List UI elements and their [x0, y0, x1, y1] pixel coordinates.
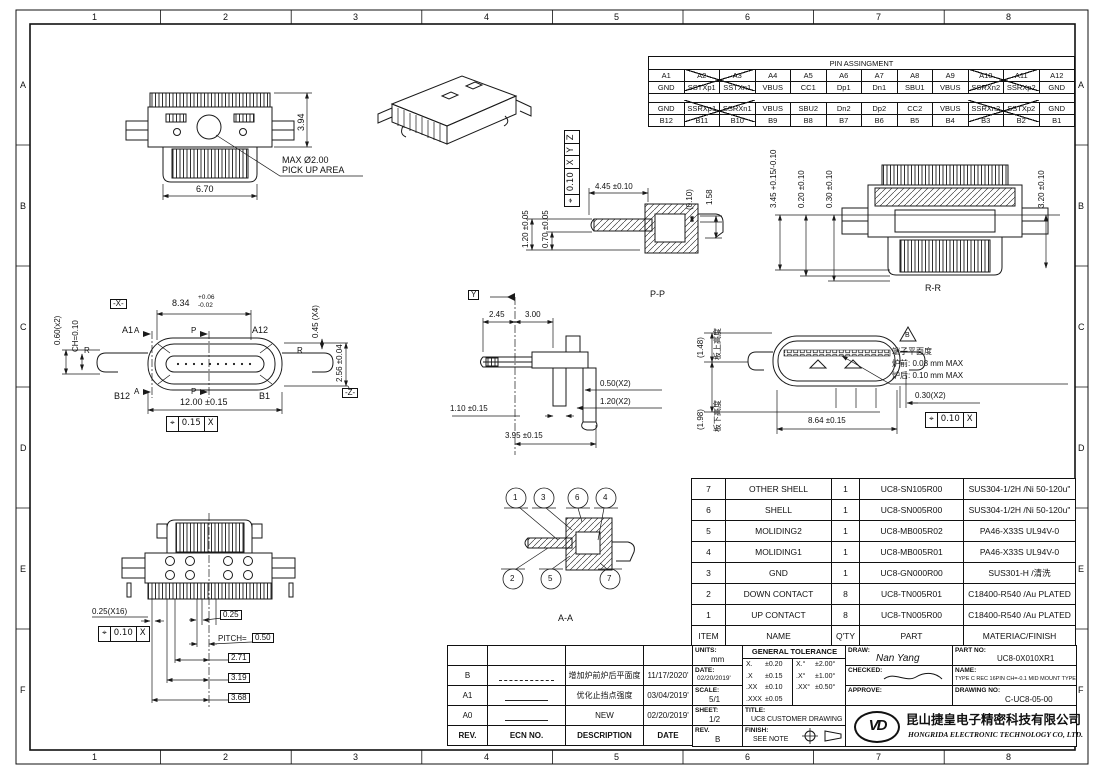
bom-cell: UC8-MB005R02	[860, 521, 964, 542]
rev-ecn-line	[488, 706, 566, 726]
position-symbol: ⌖	[99, 627, 111, 641]
datum-z-flag: -Z-	[342, 388, 358, 398]
fcf-value: 0.10	[565, 168, 579, 194]
bom-cell: 8	[832, 584, 860, 605]
bom-cell: UC8-SN005R00	[860, 500, 964, 521]
view-side-art	[452, 293, 662, 455]
pp-dim-120: 1.20 ±0.05	[522, 210, 530, 248]
sheet-cell: SHEET: 1/2	[692, 705, 744, 727]
rev-cell	[488, 646, 566, 666]
pin-cell: A9	[933, 70, 969, 82]
zone-col-3-top: 3	[353, 12, 358, 22]
pp-dim-010: (0.10)	[686, 189, 694, 210]
bom-table: 7OTHER SHELL1UC8-SN105R00SUS304-1/2H /Ni…	[691, 478, 1076, 647]
zone-col-6-top: 6	[745, 12, 750, 22]
zone-col-5-bottom: 5	[614, 752, 619, 762]
bom-row: 7OTHER SHELL1UC8-SN105R00SUS304-1/2H /Ni…	[692, 479, 1076, 500]
rev-cell: 增加炉前炉后平面度	[566, 666, 644, 686]
bom-cell: UC8-TN005R01	[860, 584, 964, 605]
projection-angle-icon	[801, 727, 845, 745]
pin-cell: Dn2	[826, 103, 862, 115]
bom-cell: 4	[692, 542, 726, 563]
rear-note-1: 端子平面度	[892, 348, 932, 356]
pin-cell: B5	[897, 115, 933, 127]
balloon-5: 5	[548, 575, 552, 583]
zone-col-4-bottom: 4	[484, 752, 489, 762]
bom-cell: 8	[832, 605, 860, 626]
finish-label: FINISH:	[745, 727, 768, 734]
bom-cell: PA46-X33S UL94V-0	[964, 542, 1076, 563]
fcf-datum: X	[565, 155, 579, 168]
zone-row-e-right: E	[1078, 564, 1084, 574]
pin-cell: A5	[791, 70, 827, 82]
view-rr-art	[775, 165, 1060, 281]
rev-cell: 03/04/2019'	[644, 686, 693, 706]
aa-section-label: A-A	[558, 614, 573, 623]
zone-col-7-top: 7	[876, 12, 881, 22]
scale-cell: SCALE: 5/1	[692, 685, 744, 707]
side-dim-050: 0.50(X2)	[600, 380, 631, 388]
gt-cell: X.	[743, 659, 765, 671]
bom-cell: DOWN CONTACT	[726, 584, 832, 605]
rear-dim-030: 0.30(X2)	[915, 392, 946, 400]
date-value: 02/20/2019'	[697, 676, 731, 683]
bom-cell: SUS304-1/2H /Ni 50-120u"	[964, 479, 1076, 500]
front-position-tolerance: ⌖0.15X	[166, 416, 218, 432]
bom-row: 2DOWN CONTACT8UC8-TN005R01C18400-R540 /A…	[692, 584, 1076, 605]
bottom-dim-271: 2.71	[228, 653, 250, 663]
zone-row-c-right: C	[1078, 322, 1085, 332]
side-dim-110: 1.10 ±0.15	[450, 405, 488, 413]
view-aa-art	[501, 488, 634, 589]
rev-label: REV.	[695, 727, 710, 734]
pin-cell: B7	[826, 115, 862, 127]
rev-cell: B	[448, 666, 488, 686]
rev-cell: NEW	[566, 706, 644, 726]
pin-cell: VBUS	[933, 103, 969, 115]
company-block: VD 昆山捷皇电子精密科技有限公司 HONGRIDA ELECTRONIC TE…	[845, 705, 1077, 747]
view-top-art	[126, 93, 363, 200]
rev-header: DESCRIPTION	[566, 726, 644, 746]
zone-row-e-left: E	[20, 564, 26, 574]
rev-cell: A0	[448, 706, 488, 726]
bom-cell: 5	[692, 521, 726, 542]
side-dim-245: 2.45	[489, 311, 505, 319]
scale-label: SCALE:	[695, 687, 719, 694]
bom-cell: MOLIDING2	[726, 521, 832, 542]
name-cell: NAME: TYPE C REC 16PIN CH=-0.1 MID MOUNT…	[952, 665, 1077, 687]
front-section-p-top: P	[191, 327, 196, 335]
pin-cell: Dp1	[826, 82, 862, 94]
fcf-value: 0.10	[938, 413, 964, 427]
pp-section-label: P-P	[650, 290, 665, 299]
bom-cell: SHELL	[726, 500, 832, 521]
rev-header: REV.	[448, 726, 488, 746]
checked-cell: CHECKED:	[845, 665, 954, 687]
rear-lbl-148: 板上高度	[714, 328, 722, 360]
gt-cell: X.°	[792, 659, 815, 671]
pin-cell: A7	[862, 70, 898, 82]
bottom-pitch-value: 0.50	[252, 633, 274, 643]
front-dim-256: 2.56 ±0.04	[336, 344, 344, 382]
pin-cell: B12	[649, 115, 685, 127]
zone-row-b-left: B	[20, 201, 26, 211]
pin-cell: GND	[649, 103, 685, 115]
pin-cell: A1	[649, 70, 685, 82]
rr-section-label: R-R	[925, 284, 941, 293]
fcf-datum: X	[964, 413, 976, 427]
pp-dim-070: 0.70 ±0.05	[542, 210, 550, 248]
fcf-value: 0.10	[111, 627, 137, 641]
bom-cell: 1	[692, 605, 726, 626]
pin-table-title: PIN ASSINGMENT	[649, 57, 1075, 70]
gt-cell: ±1.00°	[815, 671, 846, 683]
zone-col-8-top: 8	[1006, 12, 1011, 22]
rev-cell: 优化止挡点强度	[566, 686, 644, 706]
bom-cell: MOLIDING1	[726, 542, 832, 563]
front-pin-a12: A12	[252, 326, 268, 335]
rev-ecn-line	[488, 686, 566, 706]
drawing-no-label: DRAWING NO:	[955, 687, 1000, 694]
rear-dim-198: (1.98)	[697, 409, 705, 430]
front-pin-b12: B12	[114, 392, 130, 401]
datum-y-flag: Y	[468, 290, 479, 300]
rear-position-tolerance: ⌖0.10X	[925, 412, 977, 428]
pp-dim-158: 1.58	[706, 189, 714, 205]
zone-col-3-bottom: 3	[353, 752, 358, 762]
pin-cell: VBUS	[755, 82, 791, 94]
bottom-position-tolerance: ⌖0.10X	[98, 626, 150, 642]
bom-header: PART	[860, 626, 964, 647]
bom-header-row: ITEMNAMEQ'TYPARTMATERIAC/FINISH	[692, 626, 1076, 647]
rear-dim-148: (1.48)	[697, 337, 705, 358]
position-symbol: ⌖	[565, 194, 579, 206]
fcf-datum: X	[205, 417, 217, 431]
bom-row: 3GND1UC8-GN000R00SUS301-H /清洗	[692, 563, 1076, 584]
rear-lbl-198: 板下高度	[714, 400, 722, 432]
finish-cell: FINISH: SEE NOTE	[742, 725, 847, 747]
bom-cell: 7	[692, 479, 726, 500]
bom-cell: UC8-SN105R00	[860, 479, 964, 500]
pin-cell: A4	[755, 70, 791, 82]
bottom-dim-319: 3.19	[228, 673, 250, 683]
gt-cell: ±0.15	[765, 671, 792, 683]
rev-value: B	[715, 736, 720, 744]
bom-cell: C18400-R540 /Au PLATED	[964, 584, 1076, 605]
balloon-3: 3	[541, 494, 545, 502]
bom-row: 1UP CONTACT8UC8-TN005R00C18400-R540 /Au …	[692, 605, 1076, 626]
gt-cell: ±0.10	[765, 682, 792, 694]
rear-note-3: 炉后: 0.10 mm MAX	[892, 372, 963, 380]
pin-cell: B8	[791, 115, 827, 127]
zone-col-7-bottom: 7	[876, 752, 881, 762]
fcf-value: 0.15	[179, 417, 205, 431]
rev-cell: 02/20/2019'	[644, 706, 693, 726]
bom-cell: 1	[832, 563, 860, 584]
rev-cell: 11/17/2020'	[644, 666, 693, 686]
rev-cell	[566, 646, 644, 666]
title-cell: TITLE: UC8 CUSTOMER DRAWING	[742, 705, 847, 727]
draw-signature: Nan Yang	[876, 654, 920, 664]
pin-cell: A6	[826, 70, 862, 82]
rear-dim-864: 8.64 ±0.15	[808, 417, 846, 425]
balloon-1: 1	[513, 494, 517, 502]
bottom-dim-025x16: 0.25(X16)	[92, 608, 127, 616]
zone-col-1-bottom: 1	[92, 752, 97, 762]
pin-cell: CC1	[791, 82, 827, 94]
zone-col-5-top: 5	[614, 12, 619, 22]
front-pin-b1: B1	[259, 392, 270, 401]
gt-cell: .X°	[792, 671, 815, 683]
rev-empty-row	[448, 646, 693, 666]
side-dim-395: 3.95 ±0.15	[505, 432, 543, 440]
part-no-cell: PART NO: UC8-0X010XR1	[952, 645, 1077, 667]
pp-dim-445: 4.45 ±0.10	[595, 183, 633, 191]
approve-label: APPROVE:	[848, 687, 882, 694]
rev-row: B增加炉前炉后平面度11/17/2020'	[448, 666, 693, 686]
rr-dim-020: 0.20 ±0.10	[798, 170, 806, 208]
pin-cross-b-right	[968, 100, 1039, 122]
gt-cell: ±0.20	[765, 659, 792, 671]
view-iso-art	[378, 76, 531, 144]
draw-cell: DRAW: Nan Yang	[845, 645, 954, 667]
pin-cell: A8	[897, 70, 933, 82]
bom-header: NAME	[726, 626, 832, 647]
front-dim-ch: CH=0.10	[72, 320, 80, 352]
rev-row: A1优化止挡点强度03/04/2019'	[448, 686, 693, 706]
company-name-cn: 昆山捷皇电子精密科技有限公司	[906, 714, 1081, 727]
pickup-note-line1: MAX Ø2.00	[282, 156, 329, 165]
pin-cell: B1	[1039, 115, 1075, 127]
zone-col-2-bottom: 2	[223, 752, 228, 762]
part-no-label: PART NO:	[955, 647, 986, 654]
pin-cell: VBUS	[755, 103, 791, 115]
pin-cell: B6	[862, 115, 898, 127]
rev-header-row: REV.ECN NO.DESCRIPTIONDATE	[448, 726, 693, 746]
title-label: TITLE:	[745, 707, 765, 714]
rear-flag-b: B	[905, 332, 910, 339]
bom-cell: GND	[726, 563, 832, 584]
zone-col-4-top: 4	[484, 12, 489, 22]
front-r-left: R	[84, 347, 90, 355]
pin-cross-a-right	[968, 69, 1039, 91]
pin-cell: SBU2	[791, 103, 827, 115]
balloon-4: 4	[603, 494, 607, 502]
approve-cell: APPROVE:	[845, 685, 954, 707]
rev-cell: A1	[448, 686, 488, 706]
units-cell: UNITS: mm	[692, 645, 744, 667]
bom-cell: 6	[692, 500, 726, 521]
fcf-datum: Z	[565, 131, 579, 143]
pin-cell: GND	[1039, 82, 1075, 94]
gt-cell: .X	[743, 671, 765, 683]
side-dim-120: 1.20(X2)	[600, 398, 631, 406]
date-cell: DATE: 02/20/2019'	[692, 665, 744, 687]
sheet-value: 1/2	[709, 716, 720, 724]
bom-cell: 1	[832, 521, 860, 542]
company-name-en: HONGRIDA ELECTRONIC TECHNOLOGY CO, LTD.	[908, 731, 1083, 739]
bom-cell: C18400-R540 /Au PLATED	[964, 605, 1076, 626]
side-dim-300: 3.00	[525, 311, 541, 319]
rr-dim-345: 3.45 +0.15/-0.10	[770, 150, 778, 209]
bom-header: ITEM	[692, 626, 726, 647]
bom-cell: 3	[692, 563, 726, 584]
dim-394: 3.94	[297, 113, 306, 131]
revision-table: B增加炉前炉后平面度11/17/2020' A1优化止挡点强度03/04/201…	[447, 645, 693, 746]
rev-cell-block: REV. B	[692, 725, 744, 747]
front-section-a-bottom: A	[134, 388, 139, 396]
fcf-datum: Y	[565, 143, 579, 155]
drawing-sheet: 1 2 3 4 5 6 7 8 1 2 3 4 5 6 7 8 A B C D …	[0, 0, 1104, 774]
zone-row-b-right: B	[1078, 201, 1084, 211]
draw-label: DRAW:	[848, 647, 870, 654]
dim-670: 6.70	[196, 185, 214, 194]
front-dim-834: 8.34	[172, 299, 190, 308]
bom-row: 5MOLIDING21UC8-MB005R02PA46-X33S UL94V-0	[692, 521, 1076, 542]
front-pin-a1: A1	[122, 326, 133, 335]
bom-header: Q'TY	[832, 626, 860, 647]
units-value: mm	[711, 656, 724, 664]
rev-cell	[644, 646, 693, 666]
title-value: UC8 CUSTOMER DRAWING	[751, 716, 842, 723]
pin-cell: GND	[1039, 103, 1075, 115]
balloon-2: 2	[510, 575, 514, 583]
pin-cell: CC2	[897, 103, 933, 115]
gt-cell: ±0.50°	[815, 682, 846, 694]
zone-row-a-left: A	[20, 80, 26, 90]
position-symbol: ⌖	[926, 413, 938, 427]
bottom-dim-368: 3.68	[228, 693, 250, 703]
sheet-label: SHEET:	[695, 707, 718, 714]
finish-value: SEE NOTE	[753, 736, 788, 743]
pin-cell: Dp2	[862, 103, 898, 115]
bom-cell: PA46-X33S UL94V-0	[964, 521, 1076, 542]
front-dim-834-tol-dn: -0.02	[198, 303, 213, 310]
bom-cell: 1	[832, 500, 860, 521]
pin-cell: SBU1	[897, 82, 933, 94]
zone-row-c-left: C	[20, 322, 27, 332]
front-section-a-top: A	[134, 327, 139, 335]
front-dim-1200: 12.00 ±0.15	[180, 398, 227, 407]
rev-header: DATE	[644, 726, 693, 746]
pin-cell: Dn1	[862, 82, 898, 94]
bom-cell: UP CONTACT	[726, 605, 832, 626]
bom-cell: 1	[832, 479, 860, 500]
pin-cell: GND	[649, 82, 685, 94]
name-label: NAME:	[955, 667, 976, 674]
balloon-7: 7	[607, 575, 611, 583]
position-symbol: ⌖	[167, 417, 179, 431]
pin-cross-a-left	[684, 69, 755, 91]
gt-cell: .XX°	[792, 682, 815, 694]
pickup-note-line2: PICK UP AREA	[282, 166, 344, 175]
rr-dim-030: 0.30 ±0.10	[826, 170, 834, 208]
fcf-datum: X	[137, 627, 149, 641]
rev-header: ECN NO.	[488, 726, 566, 746]
zone-col-1-top: 1	[92, 12, 97, 22]
view-rear-art	[704, 327, 1068, 434]
zone-row-f-right: F	[1078, 685, 1084, 695]
bottom-dim-025: 0.25	[220, 610, 242, 620]
general-tolerance-cell: GENERAL TOLERANCE X.±0.20X.°±2.00° .X±0.…	[742, 645, 847, 707]
zone-row-f-left: F	[20, 685, 26, 695]
rev-ecn-line	[488, 666, 566, 686]
zone-col-6-bottom: 6	[745, 752, 750, 762]
rear-note-2: 炉前: 0.08 mm MAX	[892, 360, 963, 368]
rr-dim-320: 3.20 ±0.10	[1038, 170, 1046, 208]
checked-signature	[882, 669, 944, 685]
zone-col-2-top: 2	[223, 12, 228, 22]
drawing-no-value: C-UC8-05-00	[1005, 696, 1053, 704]
front-dim-045: 0.45 (X4)	[312, 305, 320, 338]
front-dim-060: 0.60(x2)	[54, 316, 62, 345]
gt-cell: ±2.00°	[815, 659, 846, 671]
scale-value: 5/1	[709, 696, 720, 704]
bom-cell: SUS301-H /清洗	[964, 563, 1076, 584]
pin-cell: B4	[933, 115, 969, 127]
front-section-p-bottom: P	[191, 388, 196, 396]
checked-label: CHECKED:	[848, 667, 882, 674]
front-r-right: R	[297, 347, 303, 355]
zone-row-d-right: D	[1078, 443, 1085, 453]
zone-row-a-right: A	[1078, 80, 1084, 90]
name-value: TYPE C REC 16PIN CH=-0.1 MID MOUNT TYPE	[955, 677, 1076, 683]
bottom-pitch-label: PITCH=	[218, 635, 247, 643]
bom-cell: 2	[692, 584, 726, 605]
bom-row: 4MOLIDING11UC8-MB005R01PA46-X33S UL94V-0	[692, 542, 1076, 563]
front-dim-834-tol-up: +0.06	[198, 295, 214, 302]
general-tolerance-title: GENERAL TOLERANCE	[743, 646, 846, 659]
bom-cell: SUS304-1/2H /Ni 50-120u"	[964, 500, 1076, 521]
bom-cell: 1	[832, 542, 860, 563]
bom-cell: UC8-GN000R00	[860, 563, 964, 584]
bom-cell: UC8-TN005R00	[860, 605, 964, 626]
pp-position-tolerance: ⌖0.10XYZ	[564, 130, 580, 207]
part-no-value: UC8-0X010XR1	[997, 655, 1054, 663]
drawing-no-cell: DRAWING NO: C-UC8-05-00	[952, 685, 1077, 707]
date-label: DATE:	[695, 667, 714, 674]
pin-cell: A12	[1039, 70, 1075, 82]
rev-cell	[448, 646, 488, 666]
datum-x-flag: -X-	[110, 299, 127, 309]
pin-cell: B9	[755, 115, 791, 127]
bom-row: 6SHELL1UC8-SN005R00SUS304-1/2H /Ni 50-12…	[692, 500, 1076, 521]
bom-header: MATERIAC/FINISH	[964, 626, 1076, 647]
units-label: UNITS:	[695, 647, 717, 654]
bom-cell: UC8-MB005R01	[860, 542, 964, 563]
company-logo: VD	[854, 711, 900, 743]
balloon-6: 6	[575, 494, 579, 502]
bom-cell: OTHER SHELL	[726, 479, 832, 500]
pin-cell: VBUS	[933, 82, 969, 94]
rev-row: A0NEW02/20/2019'	[448, 706, 693, 726]
zone-row-d-left: D	[20, 443, 27, 453]
zone-col-8-bottom: 8	[1006, 752, 1011, 762]
gt-cell: .XX	[743, 682, 765, 694]
pin-table-title-row: PIN ASSINGMENT	[649, 57, 1075, 70]
pin-cross-b-left	[684, 100, 755, 122]
